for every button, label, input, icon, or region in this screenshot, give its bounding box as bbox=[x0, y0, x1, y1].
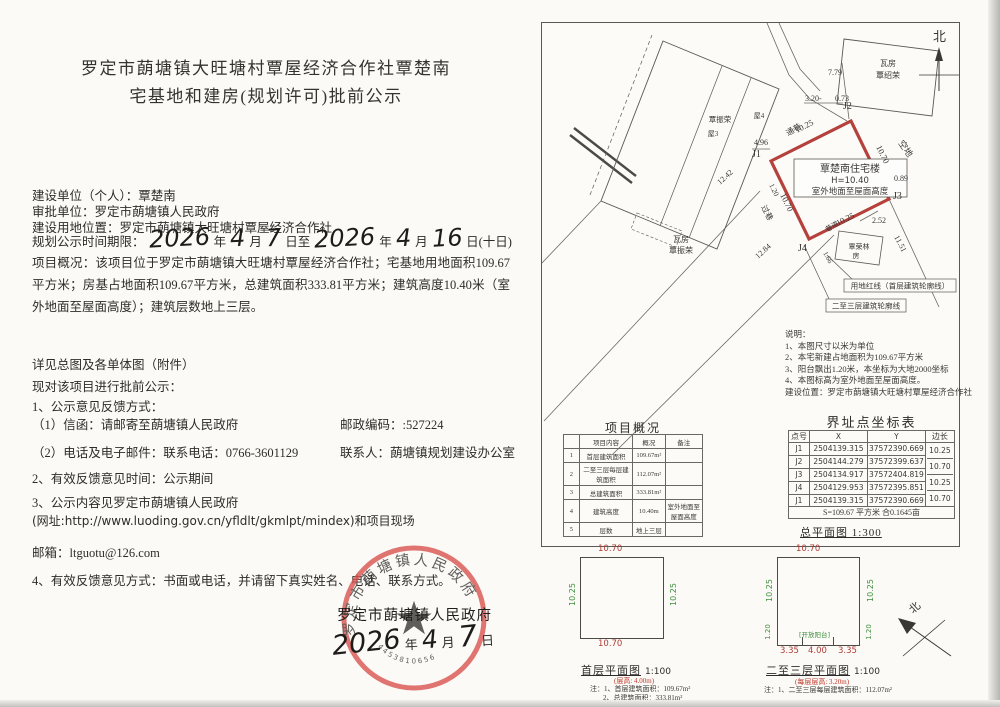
drawing-notes: 说明： 1、本图尺寸以米为单位 2、本宅新建占地面积为109.67平方米 3、阳… bbox=[785, 329, 972, 398]
month-label: 月 bbox=[249, 231, 262, 250]
balcony-label: [开放阳台] bbox=[799, 629, 830, 639]
uf-balcony-right: 1.20 bbox=[865, 624, 873, 640]
left-shed-label1: 瓦房 bbox=[673, 234, 689, 244]
uf-dim-left: 10.25 bbox=[765, 579, 774, 602]
note-1: 1、本图尺寸以米为单位 bbox=[785, 341, 972, 353]
handwritten-day2: 16 bbox=[427, 232, 466, 244]
date-day: 7 bbox=[454, 630, 481, 643]
project-overview-paragraph: 项目概况：该项目位于罗定市蓢塘镇大旺塘村覃屋经济合作社；宅基地用地面积109.6… bbox=[32, 252, 510, 318]
edge-length-column: 10.2510.70 10.2510.70 bbox=[925, 443, 954, 507]
ff-note1: 注：1、首层建筑面积：109.67m² bbox=[590, 685, 690, 694]
north-label-top: 北 bbox=[933, 29, 946, 44]
table-row: 4建筑高度 10.40m室外地面至屋面高度 bbox=[564, 500, 703, 523]
qrl-house-label2: 房 bbox=[853, 251, 860, 260]
pt-h3: 备注 bbox=[665, 435, 702, 449]
contact-person: 联系人：蓢塘镇规划建设办公室 bbox=[340, 442, 515, 461]
feedback-mail-line: （1）信函：请邮寄至蓢塘镇人民政府 bbox=[32, 414, 238, 433]
table-row: S=109.67 平方米 合0.1645亩 bbox=[789, 507, 955, 519]
north-arrow-top: 北 bbox=[919, 29, 959, 91]
pt-h0 bbox=[564, 435, 580, 449]
alley-left-label: 过巷 bbox=[759, 203, 775, 222]
plot-height-label: H=10.40 bbox=[831, 176, 869, 186]
table-row: 2二至三层每层建筑面积 112.07m² bbox=[564, 463, 703, 486]
note-2: 2、本宅新建占地面积为109.67平方米 bbox=[785, 352, 972, 364]
website-url: (网址:http://www.luoding.gov.cn/yfldlt/gkm… bbox=[32, 512, 415, 529]
uf-note1: 注：1、二至三层每层建筑面积：112.07m² bbox=[764, 686, 892, 695]
qrl-house-label1: 覃荣林 bbox=[849, 242, 870, 251]
note-4: 4、本图标高为室外地面至屋面高度。 bbox=[785, 375, 972, 387]
coord-table-title: 界址点坐标表 bbox=[788, 412, 955, 431]
north-arrow-bottom: 北 bbox=[885, 598, 965, 673]
attachment-line: 详见总图及各单体图（附件） bbox=[32, 354, 195, 373]
ct-h-point: 点号 bbox=[789, 431, 810, 443]
email-line: 邮箱：ltguotu@126.com bbox=[32, 542, 160, 561]
master-plan-caption: 总平面图 1:300 bbox=[800, 524, 882, 540]
coordinate-table: 点号 X Y 边长 J12504139.31537572390.669 10.2… bbox=[788, 430, 955, 519]
month-label2: 月 bbox=[415, 231, 428, 250]
pt-h1: 项目内容 bbox=[579, 435, 632, 449]
dim-top-edge: 10.25 bbox=[793, 117, 815, 135]
table-row: 1首层建筑面积 109.67m² bbox=[564, 449, 703, 463]
handwritten-month1: 4 bbox=[226, 232, 250, 243]
ff-dim-right: 10.25 bbox=[669, 583, 678, 606]
handwritten-year2: 2026 bbox=[310, 231, 380, 245]
uf-balcony-left: 1.20 bbox=[764, 624, 772, 640]
feedback-item3: 3、公示内容见罗定市蓢塘镇人民政府 bbox=[32, 492, 238, 511]
dim-12-84: 12.84 bbox=[753, 242, 772, 261]
notes-heading: 说明： bbox=[785, 329, 972, 341]
scanned-notice-page: 罗定市蓢塘镇大旺塘村覃屋经济合作社覃楚南 宅基地和建房(规划许可)批前公示 建设… bbox=[0, 0, 1000, 707]
area-summary: S=109.67 平方米 合0.1645亩 bbox=[789, 507, 955, 519]
date-year-label: 年 bbox=[404, 634, 418, 654]
year-label: 年 bbox=[214, 231, 227, 250]
balcony-divider2 bbox=[833, 637, 834, 645]
notice-title-line2: 宅基地和建房(规划许可)批前公示 bbox=[28, 82, 504, 107]
scan-edge-bottom bbox=[0, 700, 1000, 707]
uf-dim-335b: 3.35 bbox=[838, 646, 857, 656]
neighbour-building-outline bbox=[590, 35, 779, 249]
feedback-item2: 2、有效反馈意见时间：公示期间 bbox=[32, 468, 213, 487]
handwritten-year1: 2026 bbox=[144, 231, 214, 245]
north-label-bottom: 北 bbox=[906, 599, 923, 616]
uf-dim-right: 10.25 bbox=[866, 579, 875, 602]
uf-scale: 1:100 bbox=[854, 667, 880, 677]
ct-h-x: X bbox=[809, 431, 867, 443]
ct-h-y: Y bbox=[867, 431, 925, 443]
plot-height-note: 室外地面至屋面高度 bbox=[812, 186, 889, 196]
top-shed-label2: 覃绍荣 bbox=[876, 70, 900, 80]
uf-dim-400: 4.00 bbox=[808, 646, 827, 656]
day-to-label: 日至 bbox=[285, 231, 310, 250]
date-year: 2026 bbox=[328, 634, 405, 652]
point-J1: J1 bbox=[752, 149, 761, 160]
table-row: 3总建筑面积 333.81m² bbox=[564, 486, 703, 500]
date-day-label: 日 bbox=[481, 630, 495, 650]
project-summary-table: 项目内容 概况 备注 1首层建筑面积 109.67m² 2二至三层每层建筑面积 … bbox=[563, 434, 703, 537]
upper-floor-outline bbox=[777, 557, 860, 639]
dim-0-73: 0.73 bbox=[835, 94, 849, 103]
publicity-period-line: 规划公示时间期限： 2026 年 4 月 7 日至 2026 年 4 月 16 … bbox=[32, 231, 512, 250]
note-build-location: 建设位置：罗定市蓢塘镇大旺塘村覃屋经济合作社 bbox=[785, 387, 972, 399]
scan-edge-right bbox=[988, 0, 1000, 707]
announce-line: 现对该项目进行批前公示： bbox=[32, 376, 182, 395]
pt-h2: 概况 bbox=[633, 435, 665, 449]
ff-dim-bottom: 10.70 bbox=[598, 639, 622, 649]
day-tail-label: 日(十日) bbox=[466, 231, 512, 250]
postcode: 邮政编码：:527224 bbox=[340, 414, 443, 433]
ct-h-edge: 边长 bbox=[925, 431, 954, 443]
plot-owner-label: 覃楚南住宅楼 bbox=[820, 162, 880, 175]
point-J4: J4 bbox=[798, 243, 807, 254]
uf-caption-text: 二至三层平面图 bbox=[766, 665, 850, 677]
date-month: 4 bbox=[417, 634, 442, 646]
dim-0-89: 0.89 bbox=[894, 174, 908, 183]
big-building-owner: 覃振荣 bbox=[709, 114, 732, 124]
first-floor-outline bbox=[580, 557, 664, 639]
room3-label: 屋3 bbox=[708, 130, 719, 138]
note-3: 3、阳台飘出1.20米，本坐标为大地2000坐标 bbox=[785, 364, 972, 376]
handwritten-month2: 4 bbox=[392, 232, 416, 243]
table-row: J12504139.31537572390.669 10.2510.70 10.… bbox=[789, 443, 955, 456]
point-J3: J3 bbox=[893, 191, 902, 202]
top-shed-label1: 瓦房 bbox=[880, 58, 896, 68]
year-label2: 年 bbox=[379, 231, 392, 250]
dim-bottom-edge: 10.25 bbox=[834, 210, 856, 228]
dim-left-edge: 10.70 bbox=[778, 191, 795, 213]
north-arrowhead bbox=[898, 618, 916, 634]
period-label: 规划公示时间期限： bbox=[32, 231, 145, 250]
table-row: 5层数 地上三层 bbox=[564, 523, 703, 537]
uf-dim-top: 10.70 bbox=[796, 544, 820, 554]
room4-label: 屋4 bbox=[754, 112, 765, 120]
empty-lot-label: 空地 bbox=[896, 138, 915, 159]
dim-3-20: 3.20- bbox=[805, 94, 822, 103]
handwritten-day1: 7 bbox=[262, 232, 286, 243]
dim-1-66: 1.66 bbox=[821, 250, 834, 265]
dim-2-52: 2.52 bbox=[872, 216, 886, 225]
left-shed-label2: 覃振荣 bbox=[669, 245, 693, 255]
date-month-label: 月 bbox=[441, 632, 455, 652]
red-line-callout: 用地红线（首层建筑轮廓线） bbox=[851, 281, 950, 291]
uf-dim-335a: 3.35 bbox=[780, 646, 799, 656]
dim-12-42: 12.42 bbox=[715, 168, 734, 187]
dim-4-96: 4.96 bbox=[754, 138, 768, 147]
dim-7-79: 7.79 bbox=[828, 68, 842, 77]
upper-floor-callout: 二至三层建筑轮廓线 bbox=[832, 301, 901, 311]
feedback-phone-line: （2）电话及电子邮件：联系电话：0766-3601129 bbox=[32, 442, 298, 461]
ff-dim-top: 10.70 bbox=[598, 544, 622, 554]
ff-dim-left: 10.25 bbox=[568, 583, 577, 606]
feedback-item1: 1、公示意见反馈方式： bbox=[32, 396, 163, 415]
notice-title-line1: 罗定市蓢塘镇大旺塘村覃屋经济合作社覃楚南 bbox=[28, 54, 504, 79]
